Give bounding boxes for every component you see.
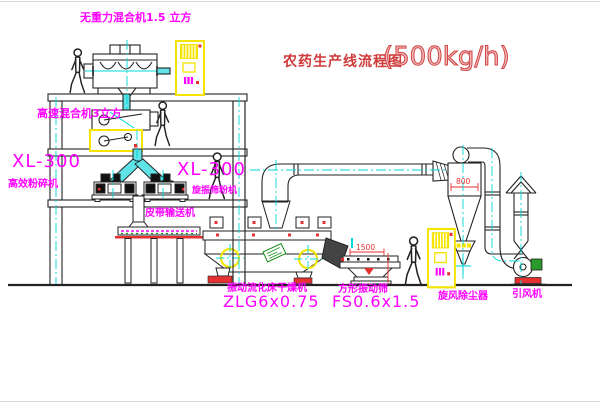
fluid-bed-dryer [203,201,331,284]
label-dryer-model: ZLG6x0.75 [223,294,320,310]
label-mill-left-model: XL-300 [12,153,81,171]
label-mill-right-name: 旋振筛粉机 [192,187,237,196]
label-gravity-mixer: 无重力混合机1.5 立方 [80,12,191,23]
person-figure-4 [405,237,421,284]
label-high-speed-mixer: 高速混合机3立方 [37,108,122,119]
dimension-screen-length: 1500 [356,244,375,252]
diagram-title-capacity: (500kg/h) [383,44,510,70]
label-mill-left-name: 高效粉碎机 [8,180,58,190]
exhaust-duct [262,161,450,202]
person-figure-1 [70,49,84,93]
label-screen-model: FS0.6x1.5 [332,294,420,310]
diagram-canvas: 农药生产线流程图 (500kg/h) 无重力混合机1.5 立方 高速混合机3立方… [0,0,600,403]
control-cabinet-2 [428,229,455,287]
label-belt-conveyor: 皮带输送机 [145,209,195,219]
label-fan: 引风机 [512,290,542,300]
label-cyclone: 旋风除尘器 [438,292,488,302]
induced-draft-fan [511,258,546,285]
control-cabinet-1 [176,41,204,95]
dimension-cyclone-width: 800 [456,178,470,186]
label-mill-right-model: XL-300 [177,161,246,179]
